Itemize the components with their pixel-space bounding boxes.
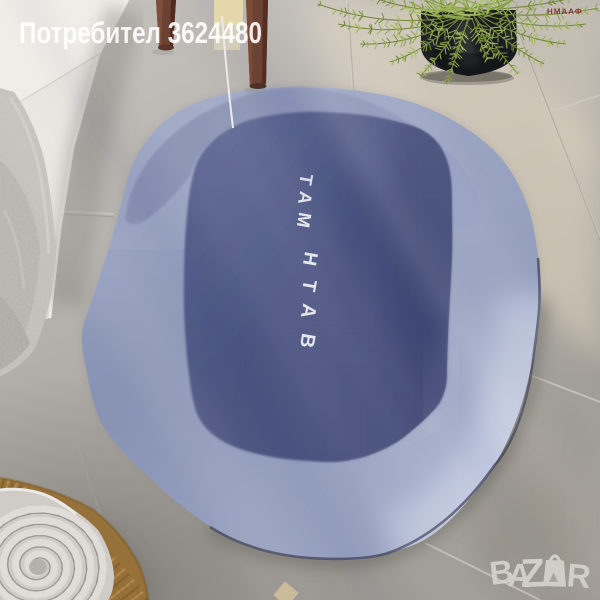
svg-text:НМААФ: НМААФ	[547, 7, 583, 16]
svg-text:Z: Z	[520, 551, 546, 596]
svg-text:R: R	[565, 556, 592, 595]
svg-text:Потребител 3624480: Потребител 3624480	[19, 17, 262, 50]
